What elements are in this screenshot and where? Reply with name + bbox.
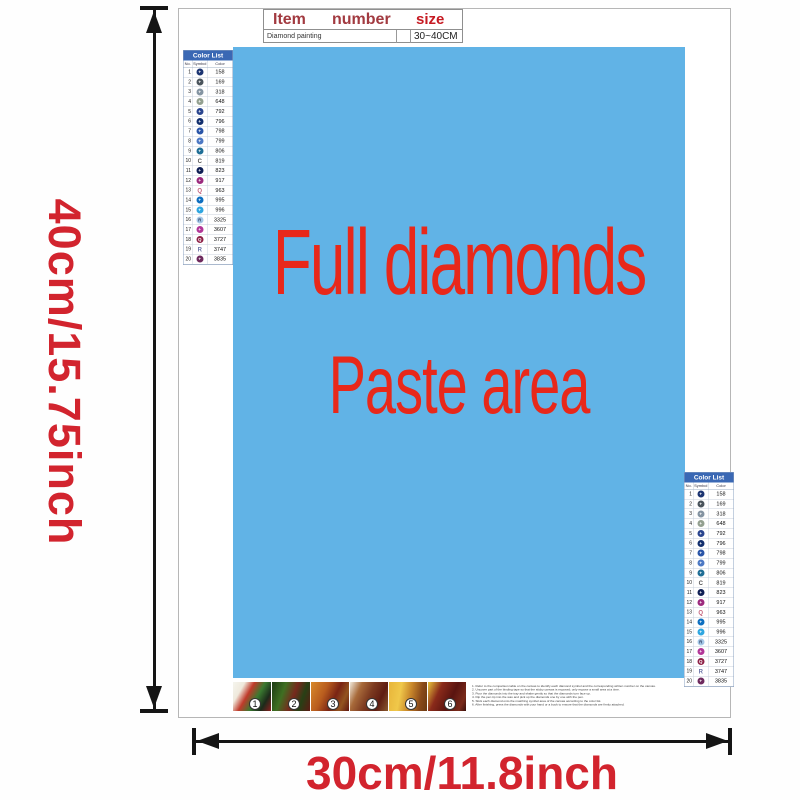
horizontal-arrow-left-cap	[192, 728, 196, 755]
color-symbol-disc-icon: +	[196, 226, 203, 233]
color-row-number: 14	[184, 195, 193, 204]
arrow-left-icon	[197, 733, 219, 749]
color-symbol-disc-icon: +	[697, 530, 704, 537]
color-symbol-cell: Q	[193, 186, 208, 195]
color-symbol-cell: +	[193, 136, 208, 145]
paste-area: Full diamonds Paste area	[233, 47, 685, 678]
color-symbol-letter: Q	[698, 609, 703, 616]
color-symbol-disc-icon: +	[697, 520, 704, 527]
color-row-number: 19	[184, 245, 193, 254]
color-code: 3325	[208, 217, 233, 223]
color-row-number: 16	[184, 215, 193, 224]
color-symbol-cell: Q	[694, 657, 709, 666]
color-row: 11+823	[685, 588, 734, 598]
color-code: 819	[208, 158, 233, 164]
step-thumbnail-3: 3	[311, 682, 350, 711]
paste-area-title-line1: Full diamonds	[233, 208, 685, 315]
color-row: 1+158	[184, 68, 233, 78]
vertical-arrow-top-cap	[140, 6, 168, 10]
vertical-arrow-line	[153, 10, 156, 710]
color-symbol-cell: +	[193, 166, 208, 175]
color-row-number: 1	[184, 68, 193, 77]
color-row-number: 7	[685, 549, 694, 558]
color-row: 8+799	[685, 558, 734, 568]
color-row: 18Q3727	[685, 657, 734, 667]
color-code: 158	[208, 69, 233, 75]
color-symbol-disc-icon: +	[196, 108, 203, 115]
horizontal-arrow-right-cap	[728, 728, 732, 755]
color-row: 11+823	[184, 166, 233, 176]
color-symbol-disc-icon: +	[697, 510, 704, 517]
color-row-number: 19	[685, 667, 694, 676]
color-symbol-disc-icon: +	[196, 177, 203, 184]
color-symbol-cell: +	[193, 68, 208, 77]
no-column-header: No.	[184, 61, 193, 68]
color-symbol-disc-icon: +	[196, 128, 203, 135]
color-row-number: 4	[685, 519, 694, 528]
color-symbol-cell: +	[694, 568, 709, 577]
color-symbol-cell: +	[193, 77, 208, 86]
no-column-header: No.	[685, 483, 694, 490]
color-row-number: 20	[184, 255, 193, 264]
color-row: 7+798	[685, 549, 734, 559]
color-symbol-disc-icon: +	[697, 491, 704, 498]
color-code: 963	[208, 187, 233, 193]
color-code: 796	[208, 118, 233, 124]
color-list-title: Color List	[184, 51, 233, 61]
color-row-number: 8	[685, 558, 694, 567]
color-symbol-cell: C	[193, 156, 208, 165]
color-symbol-disc-icon: R	[697, 638, 704, 645]
color-code: 823	[709, 590, 734, 596]
color-code: 806	[208, 148, 233, 154]
color-code: 648	[709, 521, 734, 527]
color-code: 169	[208, 79, 233, 85]
color-row-number: 14	[685, 617, 694, 626]
color-row-number: 8	[184, 136, 193, 145]
color-row-number: 3	[184, 87, 193, 96]
color-symbol-cell: +	[694, 647, 709, 656]
instructions-block: 1. Refer to the comparison table on the …	[472, 684, 714, 710]
color-code: 806	[709, 570, 734, 576]
color-row-number: 6	[184, 117, 193, 126]
instruction-line: 6. After finishing, press the diamonds w…	[472, 703, 714, 707]
step-number-badge: 5	[405, 698, 417, 710]
color-row: 14+995	[685, 617, 734, 627]
step-number-badge: 4	[366, 698, 378, 710]
color-symbol-disc-icon: +	[697, 648, 704, 655]
color-symbol-cell: +	[694, 539, 709, 548]
color-row: 16R3325	[184, 215, 233, 225]
horizontal-arrow-line	[196, 740, 728, 743]
color-symbol-cell: +	[193, 176, 208, 185]
color-symbol-disc-icon: +	[697, 540, 704, 547]
color-symbol-cell: +	[193, 97, 208, 106]
color-row-number: 17	[184, 225, 193, 234]
color-code: 963	[709, 609, 734, 615]
color-symbol-disc-icon: +	[697, 589, 704, 596]
color-row: 18Q3727	[184, 235, 233, 245]
color-row: 6+796	[184, 117, 233, 127]
color-row: 9+806	[184, 146, 233, 156]
color-row-number: 15	[184, 205, 193, 214]
item-column-header: Item	[273, 10, 306, 29]
color-row: 17+3607	[184, 225, 233, 235]
color-code: 3727	[709, 659, 734, 665]
table-divider	[396, 30, 397, 43]
color-code: 3835	[208, 256, 233, 262]
color-row: 2+169	[685, 499, 734, 509]
color-row: 19R3747	[184, 245, 233, 255]
color-symbol-cell: +	[193, 225, 208, 234]
color-row: 3+318	[184, 87, 233, 97]
color-list-right: Color List No. Symbol Color 1+1582+1693+…	[684, 472, 734, 687]
color-code: 799	[208, 138, 233, 144]
color-symbol-cell: +	[193, 107, 208, 116]
color-row: 10C819	[184, 156, 233, 166]
color-row: 9+806	[685, 568, 734, 578]
color-code: 995	[208, 197, 233, 203]
color-symbol-cell: +	[694, 499, 709, 508]
color-symbol-cell: +	[694, 617, 709, 626]
color-row-number: 12	[184, 176, 193, 185]
color-symbol-disc-icon: +	[196, 138, 203, 145]
color-row: 1+158	[685, 490, 734, 500]
color-symbol-cell: R	[694, 667, 709, 676]
color-symbol-disc-icon: +	[196, 79, 203, 86]
color-code: 799	[709, 560, 734, 566]
color-symbol-disc-icon: +	[196, 69, 203, 76]
paste-area-title-line2: Paste area	[233, 337, 685, 431]
color-symbol-cell: +	[694, 519, 709, 528]
color-row-number: 2	[685, 499, 694, 508]
color-code: 3607	[208, 227, 233, 233]
color-symbol-disc-icon: +	[697, 628, 704, 635]
color-row-number: 11	[685, 588, 694, 597]
item-info-table: Item number size Diamond painting 30~40C…	[263, 9, 463, 43]
color-symbol-disc-icon: +	[196, 147, 203, 154]
color-row-number: 12	[685, 598, 694, 607]
color-symbol-cell: +	[193, 255, 208, 264]
color-code: 798	[208, 128, 233, 134]
color-symbol-cell: +	[694, 598, 709, 607]
step-thumbnail-6: 6	[428, 682, 467, 711]
color-row: 12+917	[184, 176, 233, 186]
color-code: 648	[208, 99, 233, 105]
color-row-number: 9	[184, 146, 193, 155]
color-list-left: Color List No. Symbol Color 1+1582+1693+…	[183, 50, 233, 265]
color-row: 7+798	[184, 127, 233, 137]
color-symbol-disc-icon: +	[196, 167, 203, 174]
color-row-number: 5	[685, 529, 694, 538]
color-symbol-cell: R	[193, 215, 208, 224]
step-thumbnail-5: 5	[389, 682, 428, 711]
color-symbol-disc-icon: +	[697, 560, 704, 567]
color-row-number: 11	[184, 166, 193, 175]
color-column-header: Color	[709, 483, 734, 490]
color-symbol-disc-icon: +	[196, 118, 203, 125]
color-row-number: 13	[184, 186, 193, 195]
color-row-number: 16	[685, 637, 694, 646]
color-symbol-cell: +	[193, 117, 208, 126]
color-symbol-cell: +	[193, 195, 208, 204]
color-code: 792	[709, 531, 734, 537]
color-row: 15+996	[184, 205, 233, 215]
color-symbol-disc-icon: +	[697, 501, 704, 508]
color-code: 318	[208, 89, 233, 95]
color-code: 3607	[709, 649, 734, 655]
color-symbol-cell: +	[694, 490, 709, 499]
color-symbol-disc-icon: +	[196, 206, 203, 213]
color-row: 3+318	[685, 509, 734, 519]
color-row-number: 9	[685, 568, 694, 577]
color-symbol-disc-icon: +	[196, 256, 203, 263]
color-symbol-disc-icon: +	[697, 550, 704, 557]
color-symbol-cell: +	[694, 549, 709, 558]
color-row-number: 2	[184, 77, 193, 86]
color-row: 12+917	[685, 598, 734, 608]
color-symbol-cell: +	[694, 529, 709, 538]
color-code: 318	[709, 511, 734, 517]
color-code: 823	[208, 168, 233, 174]
color-row: 6+796	[685, 539, 734, 549]
color-symbol-cell: +	[694, 509, 709, 518]
number-column-header: number	[332, 10, 391, 29]
step-thumbnail-1: 1	[233, 682, 272, 711]
color-row: 16R3325	[685, 637, 734, 647]
color-symbol-cell: +	[694, 627, 709, 636]
color-symbol-disc-icon: Q	[196, 236, 203, 243]
color-symbol-disc-icon: Q	[697, 658, 704, 665]
arrow-right-icon	[706, 733, 728, 749]
color-symbol-cell: +	[193, 87, 208, 96]
color-code: 995	[709, 619, 734, 625]
color-list-subheader: No. Symbol Color	[685, 483, 734, 490]
color-code: 796	[709, 540, 734, 546]
color-symbol-cell: R	[694, 637, 709, 646]
color-symbol-cell: R	[193, 245, 208, 254]
color-code: 3325	[709, 639, 734, 645]
color-row-number: 1	[685, 490, 694, 499]
width-dimension-label: 30cm/11.8inch	[306, 746, 618, 800]
size-column-header: size	[416, 10, 444, 29]
step-thumbnail-4: 4	[350, 682, 389, 711]
item-table-header-row: Item number size	[264, 10, 462, 30]
color-symbol-disc-icon: +	[697, 619, 704, 626]
color-code: 3747	[208, 246, 233, 252]
color-code: 169	[709, 501, 734, 507]
color-symbol-letter: R	[699, 668, 703, 675]
color-row-number: 4	[184, 97, 193, 106]
color-row: 5+792	[685, 529, 734, 539]
color-row-number: 10	[184, 156, 193, 165]
color-row: 19R3747	[685, 667, 734, 677]
color-row: 14+995	[184, 195, 233, 205]
color-row: 4+648	[685, 519, 734, 529]
color-code: 996	[709, 629, 734, 635]
color-symbol-cell: +	[193, 146, 208, 155]
color-code: 917	[709, 599, 734, 605]
color-symbol-cell: Q	[193, 235, 208, 244]
color-symbol-letter: C	[198, 157, 202, 164]
step-number-badge: 1	[249, 698, 261, 710]
color-row: 5+792	[184, 107, 233, 117]
color-symbol-cell: +	[694, 558, 709, 567]
color-code: 798	[709, 550, 734, 556]
arrow-up-icon	[146, 11, 162, 33]
color-symbol-cell: +	[694, 588, 709, 597]
color-code: 158	[709, 491, 734, 497]
color-row: 8+799	[184, 136, 233, 146]
color-row: 13Q963	[685, 608, 734, 618]
color-row-number: 18	[184, 235, 193, 244]
color-code: 3727	[208, 237, 233, 243]
symbol-column-header: Symbol	[694, 483, 709, 490]
step-number-badge: 2	[288, 698, 300, 710]
item-table-value-row: Diamond painting 30~40CM	[264, 30, 462, 43]
color-row: 13Q963	[184, 186, 233, 196]
table-divider	[410, 30, 411, 43]
item-value: Diamond painting	[267, 33, 321, 40]
color-symbol-letter: Q	[197, 187, 202, 194]
color-symbol-disc-icon: +	[196, 98, 203, 105]
color-code: 819	[709, 580, 734, 586]
color-symbol-disc-icon: +	[196, 197, 203, 204]
color-row: 10C819	[685, 578, 734, 588]
color-code: 3747	[709, 668, 734, 674]
color-symbol-cell: +	[193, 127, 208, 136]
color-symbol-cell: Q	[694, 608, 709, 617]
step-number-badge: 6	[444, 698, 456, 710]
step-number-badge: 3	[327, 698, 339, 710]
color-code: 996	[208, 207, 233, 213]
color-list-subheader: No. Symbol Color	[184, 61, 233, 68]
color-row-number: 15	[685, 627, 694, 636]
color-column-header: Color	[208, 61, 233, 68]
symbol-column-header: Symbol	[193, 61, 208, 68]
arrow-down-icon	[146, 686, 162, 708]
color-symbol-disc-icon: +	[196, 88, 203, 95]
color-code: 792	[208, 109, 233, 115]
step-thumbnail-2: 2	[272, 682, 311, 711]
size-value: 30~40CM	[414, 31, 458, 42]
color-list-title: Color List	[685, 473, 734, 483]
color-row: 17+3607	[685, 647, 734, 657]
color-row: 15+996	[685, 627, 734, 637]
color-symbol-disc-icon: R	[196, 216, 203, 223]
color-row-number: 18	[685, 657, 694, 666]
color-row: 2+169	[184, 77, 233, 87]
color-row-number: 3	[685, 509, 694, 518]
color-row: 20+3835	[184, 255, 233, 265]
color-row: 4+648	[184, 97, 233, 107]
color-symbol-letter: C	[699, 579, 703, 586]
color-row-number: 10	[685, 578, 694, 587]
height-dimension-label: 40cm/15.75inch	[38, 199, 90, 546]
color-row-number: 6	[685, 539, 694, 548]
color-symbol-disc-icon: +	[697, 569, 704, 576]
color-row-number: 13	[685, 608, 694, 617]
step-thumbnails: 123456	[233, 682, 467, 711]
color-row-number: 17	[685, 647, 694, 656]
color-symbol-cell: +	[193, 205, 208, 214]
color-symbol-cell: C	[694, 578, 709, 587]
color-code: 917	[208, 177, 233, 183]
vertical-arrow-bottom-cap	[140, 709, 168, 713]
color-symbol-letter: R	[198, 246, 202, 253]
color-row-number: 7	[184, 127, 193, 136]
color-row-number: 5	[184, 107, 193, 116]
color-symbol-disc-icon: +	[697, 599, 704, 606]
